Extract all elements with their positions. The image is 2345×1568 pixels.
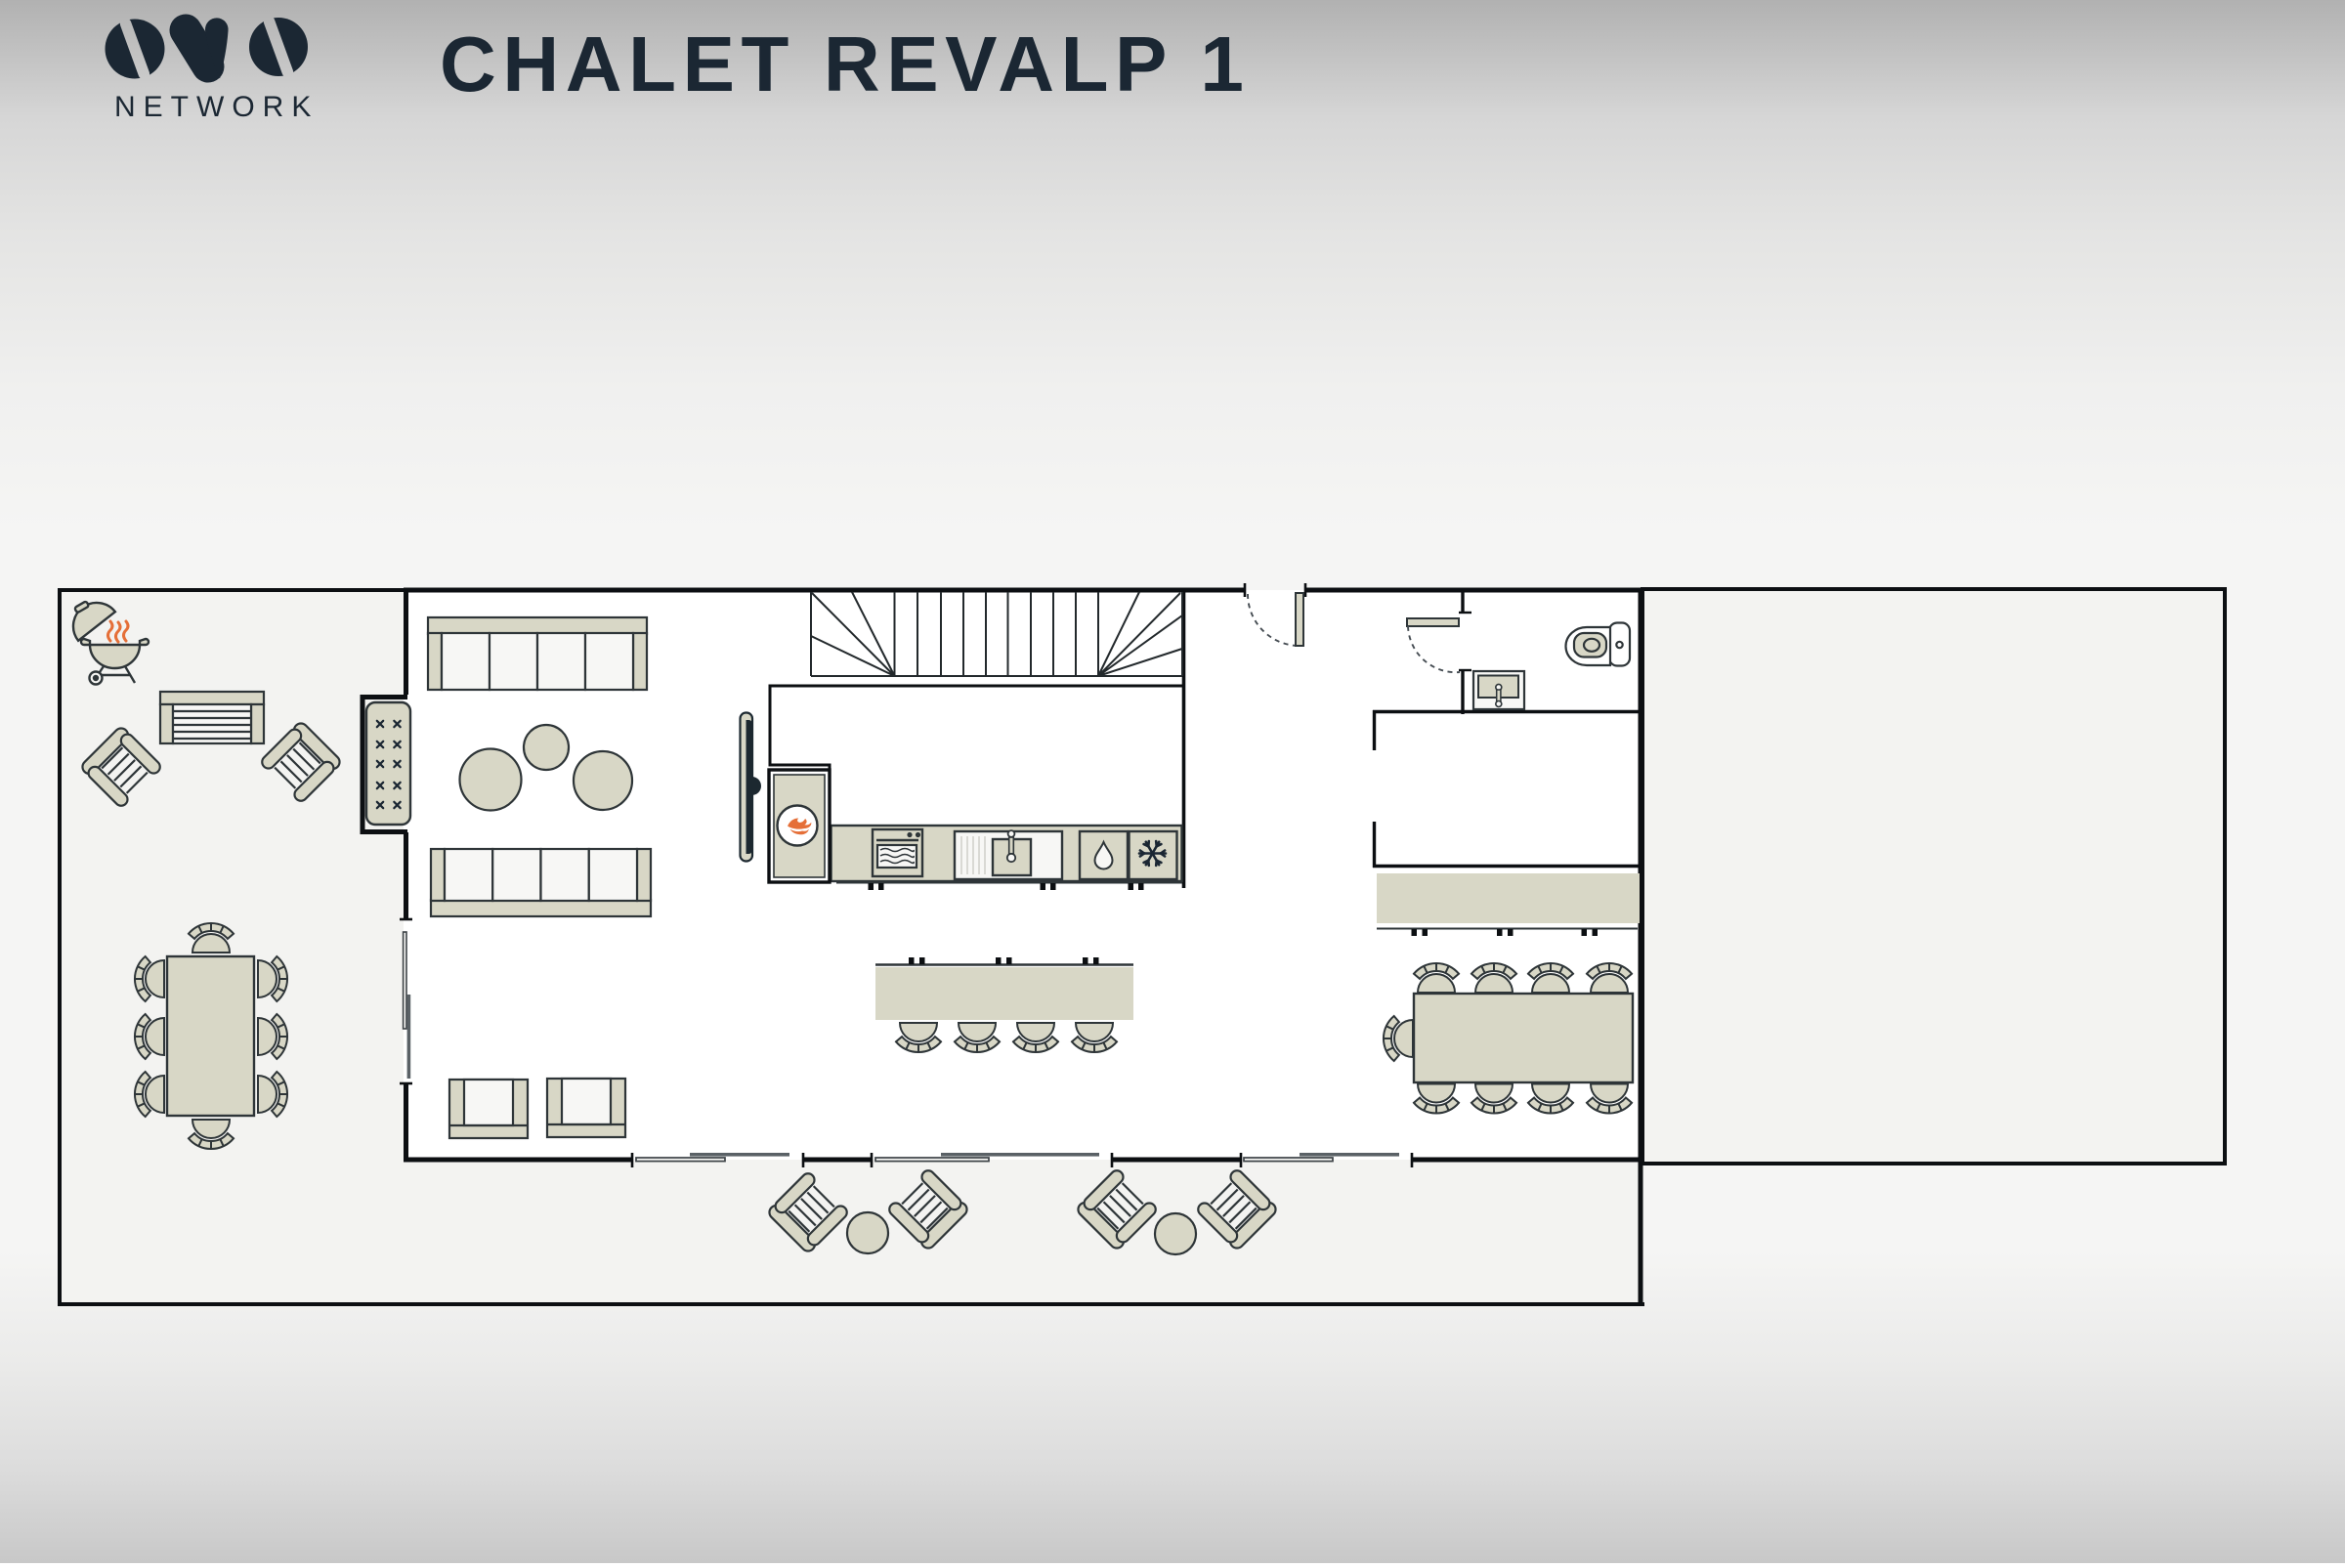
svg-text:NETWORK: NETWORK	[114, 91, 319, 123]
svg-text:CHALET REVALP 1: CHALET REVALP 1	[440, 21, 1250, 107]
